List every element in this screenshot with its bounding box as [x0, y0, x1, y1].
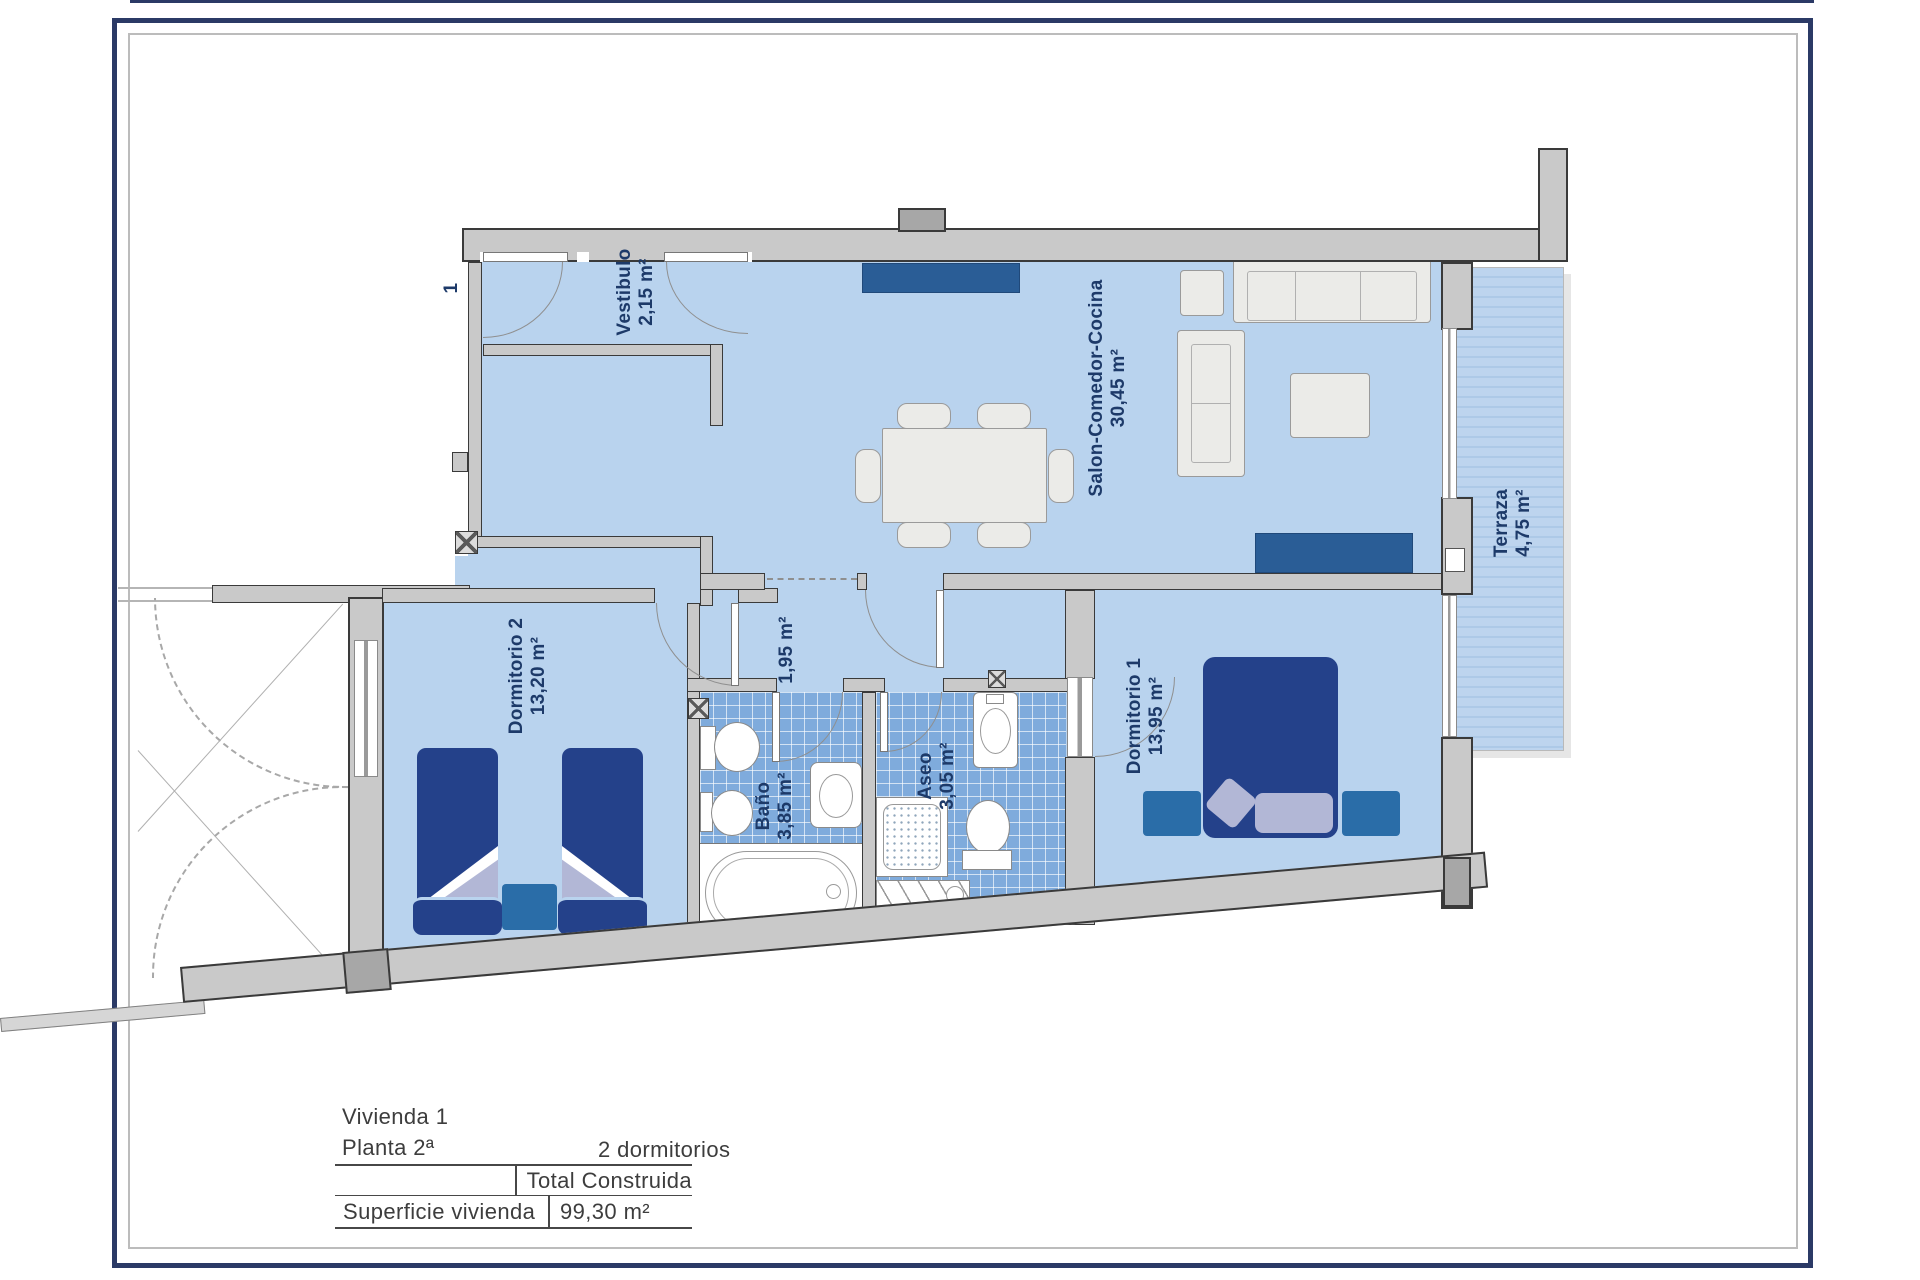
table-row-label: Superficie vivienda	[343, 1199, 535, 1225]
room-area: 2,15 m²	[636, 258, 658, 326]
pillar-east-1	[1441, 262, 1473, 330]
wall-livingroom-south-a	[700, 573, 765, 590]
room-name: Aseo	[915, 752, 937, 800]
wall-vestibule-south	[483, 344, 723, 356]
dining-chair	[855, 449, 881, 503]
room-label-dormitorio1: Dormitorio 1 13,95 m²	[1122, 606, 1170, 826]
wall-aseo-north	[943, 678, 1080, 692]
wall-vestibule-stub	[710, 344, 723, 426]
dining-chair	[977, 403, 1031, 429]
stairwell-region	[118, 598, 354, 978]
table-header-text: Total Construida	[527, 1168, 692, 1194]
bathtub-drain	[826, 884, 841, 899]
nightstand	[502, 884, 557, 930]
aseo-toilet-tank	[962, 850, 1012, 870]
wall-livingroom-south-jamb	[857, 573, 867, 590]
sofa-seat-outline	[1247, 271, 1417, 321]
dining-table	[882, 428, 1047, 523]
room-area: 3,05 m²	[937, 742, 959, 810]
room-area: 13,20 m²	[528, 637, 550, 715]
wall-bedroom1-west-upper	[1065, 590, 1095, 679]
frame-top-line	[130, 0, 1814, 3]
wall-bath-north-mid	[843, 678, 885, 692]
room-name: Dormitorio 1	[1124, 658, 1146, 775]
dining-chair	[977, 522, 1031, 548]
dining-chair	[1048, 449, 1074, 503]
dining-chair	[897, 522, 951, 548]
dining-chair	[897, 403, 951, 429]
floor-title: Planta 2ª	[342, 1135, 434, 1161]
room-name: Vestibulo	[614, 248, 636, 335]
bed-footboard	[413, 897, 502, 935]
duct-shaft	[688, 698, 709, 719]
room-label-bano: Baño 3,85 m²	[751, 696, 799, 916]
hallway-door-leaf	[936, 590, 944, 668]
wall-bath-aseo-divider	[862, 692, 876, 924]
table-row-label-cell: Superficie vivienda	[335, 1196, 548, 1227]
duct-shaft	[988, 670, 1006, 688]
room-area: 3,85 m²	[775, 772, 797, 840]
unit-number-label: 1	[428, 178, 476, 398]
party-wall-line	[118, 587, 212, 589]
sofa-seat-divider	[1360, 271, 1361, 321]
pillar-east-2	[1441, 497, 1473, 595]
aseo-door-leaf	[880, 692, 888, 752]
entrance-door-leaf	[483, 252, 568, 262]
door-hinge-notch	[577, 252, 589, 262]
area-table: Total Construida Superficie vivienda 99,…	[335, 1164, 692, 1229]
sink-basin	[980, 708, 1011, 754]
room-label-terraza: Terraza 4,75 m²	[1489, 413, 1537, 633]
bedroom2-window	[354, 640, 378, 777]
bedroom1-door-opening	[1067, 677, 1093, 757]
door-swing-dashed-arc	[152, 786, 354, 978]
coffee-table	[1290, 373, 1370, 438]
wall-livingroom-south-b	[943, 573, 1450, 590]
wall-left-notch	[452, 452, 468, 472]
bedroom1-window-east	[1442, 595, 1457, 737]
floor-title-text: Planta 2ª	[342, 1135, 434, 1160]
sink-basin	[819, 774, 853, 818]
livingroom-window-east	[1442, 328, 1457, 499]
bed-pillow	[1255, 793, 1333, 833]
room-area: 1,95 m²	[776, 616, 798, 684]
aseo-toilet-bowl	[966, 800, 1010, 854]
table-row-value: 99,30 m²	[560, 1199, 650, 1225]
side-table	[1180, 270, 1224, 316]
bidet-bowl	[711, 790, 753, 836]
table-value-row: Superficie vivienda 99,30 m²	[335, 1196, 692, 1229]
kitchen-counter	[862, 263, 1020, 293]
wall-top-right-return	[1538, 148, 1568, 262]
sideboard	[1255, 533, 1413, 573]
sink-faucet	[986, 694, 1004, 704]
pillar-east-3-footing	[1443, 857, 1471, 907]
room-label-salon: Salon-Comedor-Cocina 30,45 m²	[1084, 278, 1132, 498]
table-row-value-cell: 99,30 m²	[548, 1196, 692, 1227]
terrace-door-jamb	[1445, 548, 1465, 572]
sofa-seat-divider	[1295, 271, 1296, 321]
room-area: 30,45 m²	[1108, 349, 1130, 427]
nightstand	[1342, 791, 1400, 836]
room-label-dormitorio2: Dormitorio 2 13,20 m²	[504, 566, 552, 786]
wall-midroom-south	[455, 536, 713, 548]
wall-midroom-east	[700, 536, 713, 606]
unit-title-text: Vivienda 1	[342, 1104, 448, 1129]
room-area: 4,75 m²	[1513, 489, 1535, 557]
room-label-vestibulo: Vestibulo 2,15 m²	[612, 182, 660, 402]
room-name: Salon-Comedor-Cocina	[1086, 279, 1108, 496]
unit-title: Vivienda 1	[342, 1104, 448, 1130]
table-empty-cell	[335, 1166, 515, 1195]
duct-shaft	[455, 531, 478, 554]
table-header-row: Total Construida	[335, 1166, 692, 1196]
vestibule-door-leaf	[664, 252, 748, 262]
room-name: Baño	[753, 782, 775, 831]
room-name: Dormitorio 2	[506, 618, 528, 735]
door-swing-dashed-arc	[154, 598, 354, 788]
room-name: Terraza	[1491, 489, 1513, 557]
room-label-aseo: Aseo 3,05 m²	[913, 666, 961, 886]
bedroom2-door-leaf	[731, 603, 739, 686]
unit-number: 1	[441, 283, 463, 294]
sofa-seat-divider	[1191, 403, 1231, 404]
bedrooms-count: 2 dormitorios	[598, 1137, 730, 1163]
floorplan-page: 1 Vestibulo 2,15 m² Salon-Comedor-Cocina…	[0, 0, 1920, 1280]
wall-chimney-block	[898, 208, 946, 232]
table-header-cell: Total Construida	[515, 1166, 692, 1195]
bedrooms-count-text: 2 dormitorios	[598, 1137, 730, 1162]
room-area: 13,95 m²	[1146, 677, 1168, 755]
exterior-pillar	[342, 948, 391, 994]
